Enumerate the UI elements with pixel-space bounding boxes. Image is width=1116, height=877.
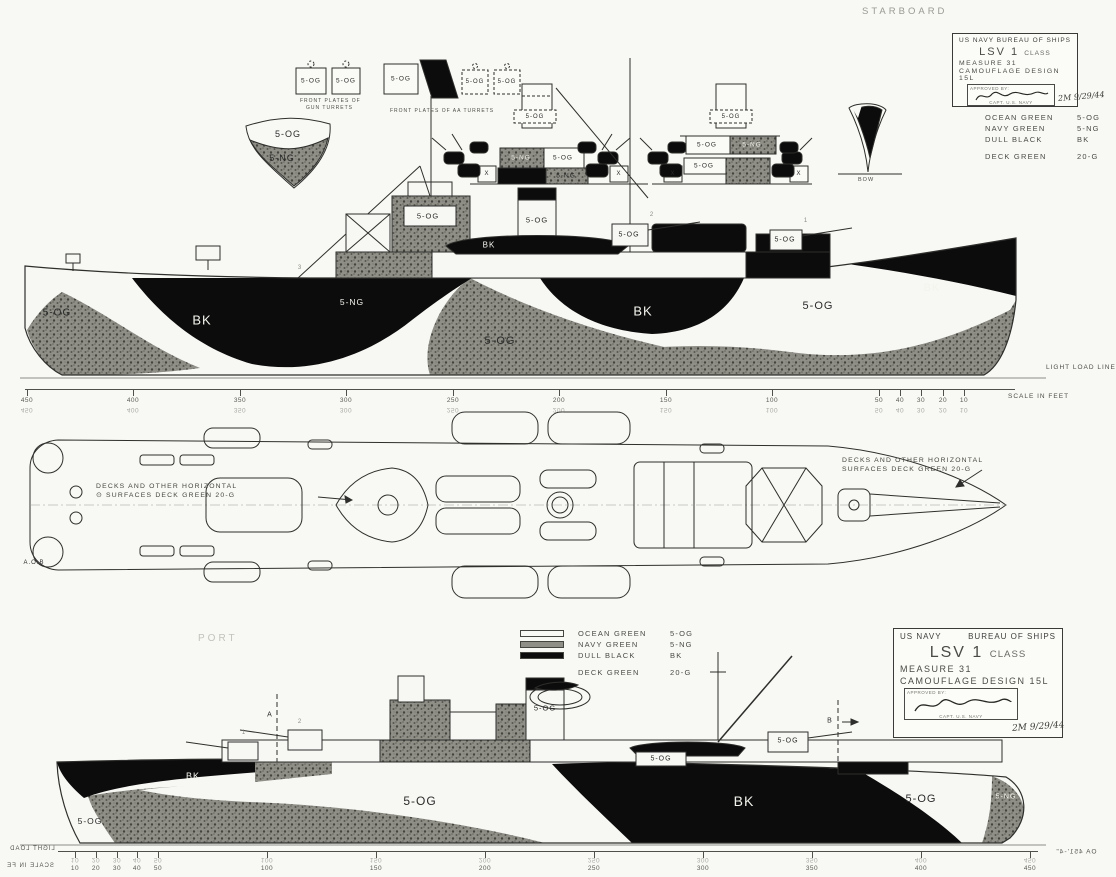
scale-tick-label: 30	[917, 397, 925, 404]
legend-name: OCEAN GREEN	[578, 629, 670, 638]
scale-tick-label: 40	[133, 865, 141, 872]
color-legend-bottom: OCEAN GREEN5-OG NAVY GREEN5-NG DULL BLAC…	[520, 628, 706, 678]
design-label: CAMOUFLAGE DESIGN 15L	[900, 676, 1056, 686]
measure-label: MEASURE 31	[900, 664, 1056, 674]
scale-tick-label: 350	[234, 397, 246, 404]
scale-tick	[964, 390, 965, 396]
drawing-artwork	[0, 0, 1116, 877]
scale-tick-label: 400	[127, 397, 139, 404]
scale-tick-label: 150	[370, 865, 382, 872]
agency-label: US NAVY	[959, 37, 994, 44]
bureau-label: BUREAU OF SHIPS	[968, 632, 1056, 641]
legend-code: 20-G	[670, 668, 706, 677]
scale-tick-label: 300	[697, 865, 709, 872]
scale-tick-label: 40	[896, 397, 904, 404]
scale-in-feet-label: SCALE IN FEET	[1008, 393, 1069, 400]
scale-tick-ghost: 10	[960, 406, 968, 413]
superstructure-end-view-forward	[432, 84, 648, 184]
scale-tick-label: 400	[915, 865, 927, 872]
scale-tick-ghost: 450	[21, 406, 33, 413]
scale-tick-label: 150	[660, 397, 672, 404]
legend-code: 20-G	[1077, 152, 1113, 161]
bow-section-detail	[246, 118, 330, 188]
legend-name: DECK GREEN	[985, 152, 1077, 161]
top-scale-ruler: 4504504004003503503003002502502002001501…	[25, 389, 1015, 416]
legend-name: OCEAN GREEN	[985, 113, 1077, 122]
scale-tick	[133, 390, 134, 396]
gun-turret-detail	[296, 61, 360, 94]
scale-tick	[943, 390, 944, 396]
deck-note-line1: DECKS AND OTHER HORIZONTAL	[842, 456, 983, 465]
measure-label: MEASURE 31	[959, 60, 1071, 67]
scale-tick	[346, 390, 347, 396]
bow-view-caption: BOW	[858, 177, 874, 183]
scale-tick	[27, 390, 28, 396]
legend-code: BK	[670, 651, 706, 660]
scale-tick-ghost: 30	[917, 406, 925, 413]
scale-tick-ghost: 40	[133, 856, 141, 863]
class-suffix: CLASS	[1024, 50, 1051, 57]
scale-tick-ghost: 100	[766, 406, 778, 413]
bureau-label: BUREAU OF SHIPS	[997, 37, 1071, 44]
scale-tick	[879, 390, 880, 396]
legend-name: DECK GREEN	[578, 668, 670, 677]
scale-tick	[666, 390, 667, 396]
scale-tick-ghost: 30	[113, 856, 121, 863]
scale-tick-label: 450	[21, 397, 33, 404]
gun-turret-caption-line1: FRONT PLATES OF	[300, 98, 361, 104]
scale-tick-ghost: 200	[553, 406, 565, 413]
ocean-green-swatch	[520, 630, 564, 637]
legend-name: NAVY GREEN	[578, 640, 670, 649]
aa-turret-caption: FRONT PLATES OF AA TURRETS	[390, 108, 494, 114]
scale-tick-ghost: 250	[588, 856, 600, 863]
scale-tick-ghost: 150	[660, 406, 672, 413]
signer-title: CAPT. U.S. NAVY	[989, 100, 1032, 105]
design-label: CAMOUFLAGE DESIGN 15L	[959, 68, 1071, 82]
scale-tick	[240, 390, 241, 396]
scale-tick-label: 100	[766, 397, 778, 404]
legend-name: DULL BLACK	[985, 135, 1077, 144]
deck-plan-drawing	[30, 412, 1006, 598]
navy-green-swatch	[520, 641, 564, 648]
legend-name: DULL BLACK	[578, 651, 670, 660]
scale-tick-ghost: 100	[261, 856, 273, 863]
bow-end-view	[838, 104, 902, 174]
scale-tick-ghost: 250	[447, 406, 459, 413]
legend-code: 5-NG	[670, 640, 706, 649]
scale-tick-label: 100	[261, 865, 273, 872]
legend-code: 5-OG	[670, 629, 706, 638]
scale-tick-label: 30	[113, 865, 121, 872]
port-view-label: PORT	[198, 633, 238, 644]
scale-tick-ghost: 50	[875, 406, 883, 413]
scale-tick	[453, 390, 454, 396]
scale-tick	[921, 390, 922, 396]
starboard-view-label: STARBOARD	[862, 6, 947, 17]
legend-code: BK	[1077, 135, 1113, 144]
legend-code: 5-NG	[1077, 124, 1113, 133]
reference-circle-symbol: ⊙	[96, 492, 103, 499]
scale-tick-label: 50	[154, 865, 162, 872]
scale-tick-label: 450	[1024, 865, 1036, 872]
deck-note-line2: SURFACES DECK GREEN 20-G	[106, 492, 235, 499]
scale-tick-ghost: 300	[697, 856, 709, 863]
agency-label: US NAVY	[900, 632, 942, 641]
scale-tick-ghost: 50	[154, 856, 162, 863]
scale-tick-ghost: 450	[1024, 856, 1036, 863]
scale-tick	[900, 390, 901, 396]
scale-tick-label: 10	[960, 397, 968, 404]
scale-tick-ghost: 10	[71, 856, 79, 863]
scale-tick-ghost: 20	[939, 406, 947, 413]
scale-tick-label: 250	[588, 865, 600, 872]
scale-tick	[559, 390, 560, 396]
approval-box: APPROVED BY: CAPT. U.S. NAVY	[967, 84, 1055, 106]
scale-tick-label: 200	[553, 397, 565, 404]
aa-turret-detail	[384, 60, 520, 98]
scale-tick-ghost: 20	[92, 856, 100, 863]
deck-note-left: DECKS AND OTHER HORIZONTAL ⊙ SURFACES DE…	[96, 482, 237, 500]
scale-tick-label: 250	[447, 397, 459, 404]
signer-title: CAPT. U.S. NAVY	[939, 714, 982, 719]
scale-tick-ghost: 300	[340, 406, 352, 413]
scale-tick-ghost: 400	[915, 856, 927, 863]
scale-tick-label: 20	[939, 397, 947, 404]
scale-tick-ghost: 150	[370, 856, 382, 863]
camouflage-drawing-sheet: 5-OG5-NG5-OG5-OG5-OG5-OG5-OG5-OG5-NG5-OG…	[0, 0, 1116, 877]
light-load-line-label: LIGHT LOAD LINE	[1046, 364, 1116, 371]
detail-strip-drawing	[246, 60, 902, 188]
superstructure-end-view-aft	[640, 84, 812, 184]
class-suffix: CLASS	[990, 649, 1026, 660]
gun-turret-caption-line2: GUN TURRETS	[306, 105, 353, 111]
scale-tick-label: 10	[71, 865, 79, 872]
scale-tick-label: 300	[340, 397, 352, 404]
scale-tick-label: 20	[92, 865, 100, 872]
scale-tick-ghost: 400	[127, 406, 139, 413]
approval-box: APPROVED BY: CAPT. U.S. NAVY	[904, 688, 1018, 720]
scale-tick-ghost: 200	[479, 856, 491, 863]
scale-tick-ghost: 350	[234, 406, 246, 413]
legend-code: 5-OG	[1077, 113, 1113, 122]
deck-note-right: DECKS AND OTHER HORIZONTAL SURFACES DECK…	[842, 456, 983, 474]
scale-tick-ghost: 40	[896, 406, 904, 413]
ship-class: LSV 1	[930, 644, 984, 661]
dull-black-swatch	[520, 652, 564, 659]
scale-tick-ghost: 350	[806, 856, 818, 863]
color-legend-top: OCEAN GREEN5-OG NAVY GREEN5-NG DULL BLAC…	[985, 112, 1113, 162]
bottom-scale-ruler: 1010202030304040505010010015015020020025…	[58, 851, 1038, 877]
scale-tick-label: 350	[806, 865, 818, 872]
ship-class: LSV 1	[979, 46, 1019, 58]
deck-note-line2: SURFACES DECK GREEN 20-G	[842, 465, 983, 474]
scale-tick	[772, 390, 773, 396]
deck-note-line1: DECKS AND OTHER HORIZONTAL	[96, 482, 237, 491]
scale-tick-label: 50	[875, 397, 883, 404]
scale-tick-label: 200	[479, 865, 491, 872]
legend-name: NAVY GREEN	[985, 124, 1077, 133]
